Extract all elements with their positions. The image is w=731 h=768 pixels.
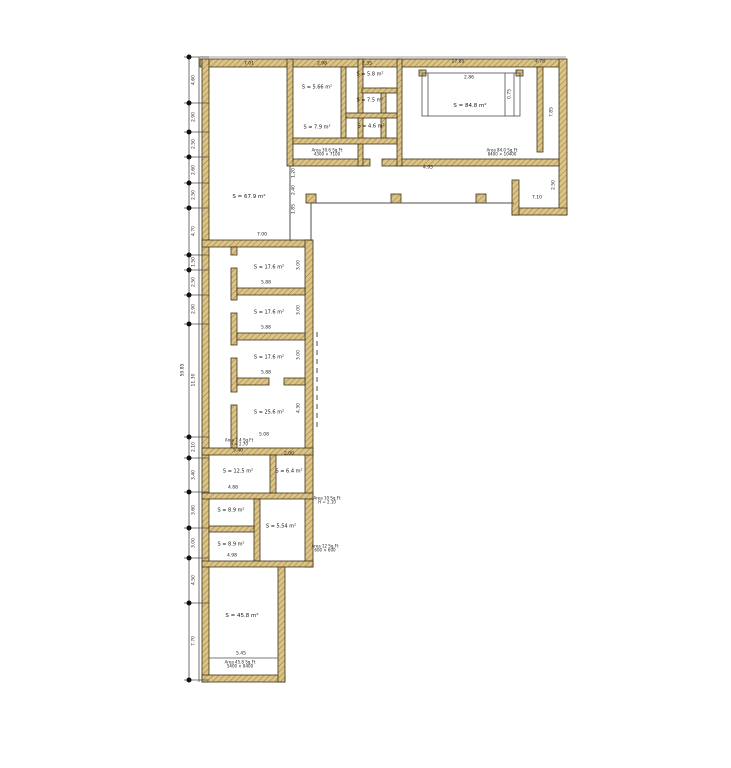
dim-label: 5.45: [236, 653, 246, 658]
area-note: Area 12 Sq.Ft 600 × 600: [311, 545, 338, 554]
dim-label: 3.40: [193, 470, 198, 480]
dim-label: 17.85: [452, 61, 465, 66]
dim-label: 2.98: [317, 63, 327, 68]
area-note-line: 5400 × 8400: [225, 665, 256, 669]
column: [391, 194, 401, 203]
overall-dim-label: 59.85: [182, 364, 187, 377]
dim-label: 4.98: [227, 555, 237, 560]
area-note: Area 45.8 Sq.Ft 5400 × 8400: [225, 661, 256, 670]
room-label: S = 25.6 m²: [254, 410, 284, 416]
column: [476, 194, 486, 203]
room-label: S = 4.6 m²: [358, 124, 385, 130]
dim-label: 2.90: [193, 304, 198, 314]
dim-label: 2.50: [193, 277, 198, 287]
floorplan-page: S = 67.9 m² S = 5.66 m² S = 7.9 m² S = 5…: [0, 0, 731, 768]
dim-label: 7.01: [244, 63, 254, 68]
dim-label: 2.60: [193, 165, 198, 175]
dim-label: 3.00: [298, 350, 303, 360]
dim-label: 7.10: [532, 197, 542, 202]
dim-label: 2.10: [193, 442, 198, 452]
room-label: S = 84.8 m²: [453, 103, 486, 109]
dim-label: 5.40: [233, 450, 243, 455]
dim-label: 3.00: [298, 260, 303, 270]
dim-label: 2.90: [193, 112, 198, 122]
dim-label: 2.00: [284, 453, 294, 458]
dim-label: 4.88: [228, 487, 238, 492]
area-note: Area 10 Sq.Ft H = 2.10: [313, 497, 340, 506]
dim-label: 11.30: [193, 374, 198, 387]
area-note-line: H = 2.70: [225, 443, 253, 447]
dim-label: 7.00: [257, 234, 267, 239]
dim-label: 3.00: [193, 538, 198, 548]
dim-label: 2.35: [362, 63, 372, 68]
area-note-line: 600 × 600: [311, 549, 338, 553]
dim-label: 5.08: [259, 434, 269, 439]
room-label: S = 6.4 m²: [276, 469, 303, 475]
room-label: S = 17.6 m²: [254, 265, 284, 271]
dim-label: 4.78: [535, 61, 545, 66]
area-note: Area 7.4 Sq.Ft H = 2.70: [225, 439, 253, 448]
dim-label: 7.70: [193, 636, 198, 646]
room-label: S = 45.8 m²: [225, 613, 258, 619]
dim-label: 1.20: [293, 168, 298, 178]
room-label: S = 8.9 m²: [218, 542, 245, 548]
dim-label: 3.60: [193, 505, 198, 515]
dim-label: 3.00: [298, 305, 303, 315]
dim-label: 1.50: [193, 257, 198, 267]
area-note-line: 4300 × 7100: [312, 153, 343, 157]
area-note-line: 8400 × 10400: [487, 153, 518, 157]
dim-label: 4.70: [193, 226, 198, 236]
area-note: Area 84.0 Sq.Ft 8400 × 10400: [487, 149, 518, 158]
room-label: S = 12.5 m²: [223, 469, 253, 475]
room-label: S = 5.54 m²: [266, 524, 296, 530]
room-label: S = 7.5 m²: [357, 98, 384, 104]
area-note: Area 30.6 Sq.Ft 4300 × 7100: [312, 149, 343, 158]
dim-label: 4.60: [193, 75, 198, 85]
dim-label: 2.50: [553, 180, 558, 190]
room-label: S = 17.6 m²: [254, 355, 284, 361]
dim-label: 1.85: [293, 204, 298, 214]
dim-label: 5.88: [261, 372, 271, 377]
area-note-line: H = 2.10: [313, 501, 340, 505]
dim-label: 2.50: [193, 139, 198, 149]
dim-label: 2.86: [464, 77, 474, 82]
room-label: S = 8.9 m²: [218, 508, 245, 514]
dim-label: 2.40: [293, 185, 298, 195]
dim-label: 4.50: [193, 575, 198, 585]
dim-label: 4.30: [298, 403, 303, 413]
dim-label: 5.88: [261, 327, 271, 332]
dim-label: 2.50: [193, 190, 198, 200]
room-label: S = 7.9 m²: [304, 125, 331, 131]
room-label: S = 17.6 m²: [254, 310, 284, 316]
dim-label: 5.88: [261, 282, 271, 287]
room-label: S = 5.8 m²: [357, 72, 384, 78]
floorplan-drawing: [0, 0, 731, 768]
dim-label: 4.95: [423, 167, 433, 172]
dim-label: 7.85: [551, 107, 556, 117]
dim-label: 0.75: [509, 89, 514, 99]
column: [306, 194, 316, 203]
room-label: S = 67.9 m²: [232, 194, 265, 200]
room-label: S = 5.66 m²: [302, 85, 332, 91]
